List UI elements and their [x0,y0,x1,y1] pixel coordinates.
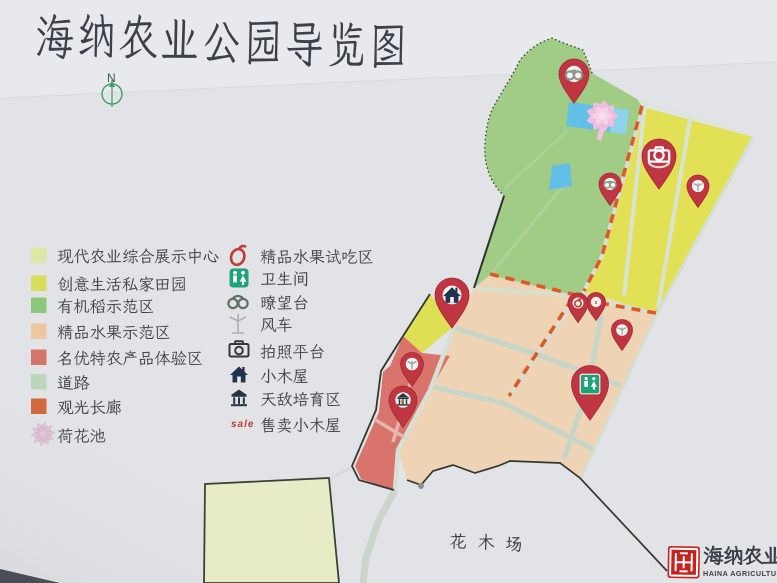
svg-text:HAINA AGRICULTUR: HAINA AGRICULTUR [703,569,777,578]
svg-text:s: s [595,300,598,306]
svg-text:sale: sale [231,419,254,430]
